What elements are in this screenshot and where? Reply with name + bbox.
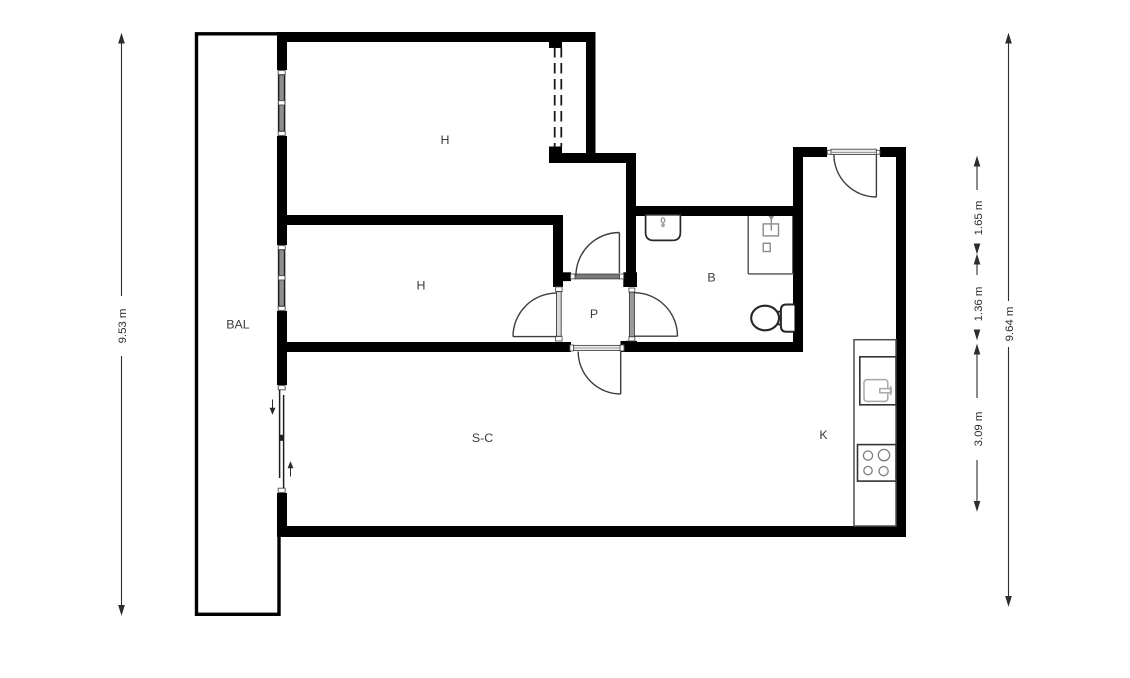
svg-text:BAL: BAL	[226, 318, 250, 332]
svg-text:9.53 m: 9.53 m	[117, 309, 129, 344]
svg-text:1.36 m: 1.36 m	[973, 287, 985, 322]
svg-text:3.09 m: 3.09 m	[973, 412, 985, 447]
svg-text:P: P	[590, 307, 598, 321]
svg-text:K: K	[819, 428, 828, 442]
svg-text:B: B	[707, 271, 715, 285]
svg-text:H: H	[441, 133, 450, 147]
svg-text:9.64 m: 9.64 m	[1004, 307, 1016, 342]
svg-text:S-C: S-C	[472, 431, 493, 445]
svg-text:1.65 m: 1.65 m	[973, 201, 985, 236]
svg-text:H: H	[417, 279, 426, 293]
